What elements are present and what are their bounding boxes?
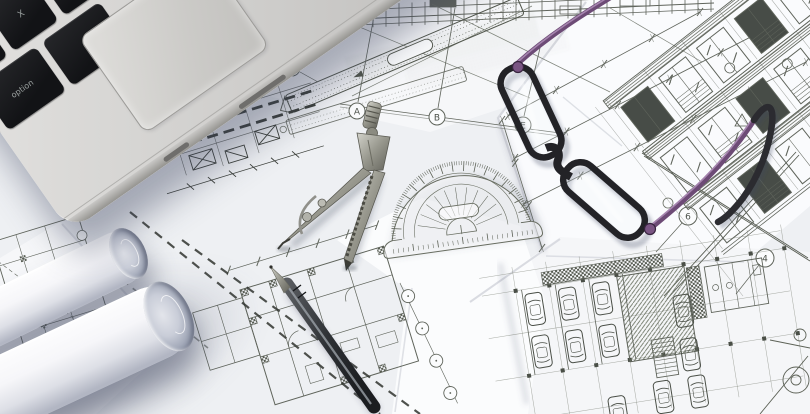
protractor	[372, 150, 545, 259]
compass-screw	[362, 101, 382, 131]
pencil-highlight	[284, 281, 371, 404]
pencil-lead	[269, 265, 272, 268]
compass-knob	[303, 213, 312, 222]
glasses-hinge-left	[513, 62, 524, 73]
photo-architect-desk: 3 A B E 6 4	[0, 0, 810, 414]
compass-head	[357, 133, 390, 171]
glasses-temple-left	[517, 0, 616, 64]
drafting-compass	[277, 101, 390, 271]
compass-knob	[318, 199, 326, 207]
drafting-tools	[0, 0, 810, 414]
glasses-hinge-right	[645, 224, 656, 235]
mechanical-pencil	[269, 265, 376, 412]
